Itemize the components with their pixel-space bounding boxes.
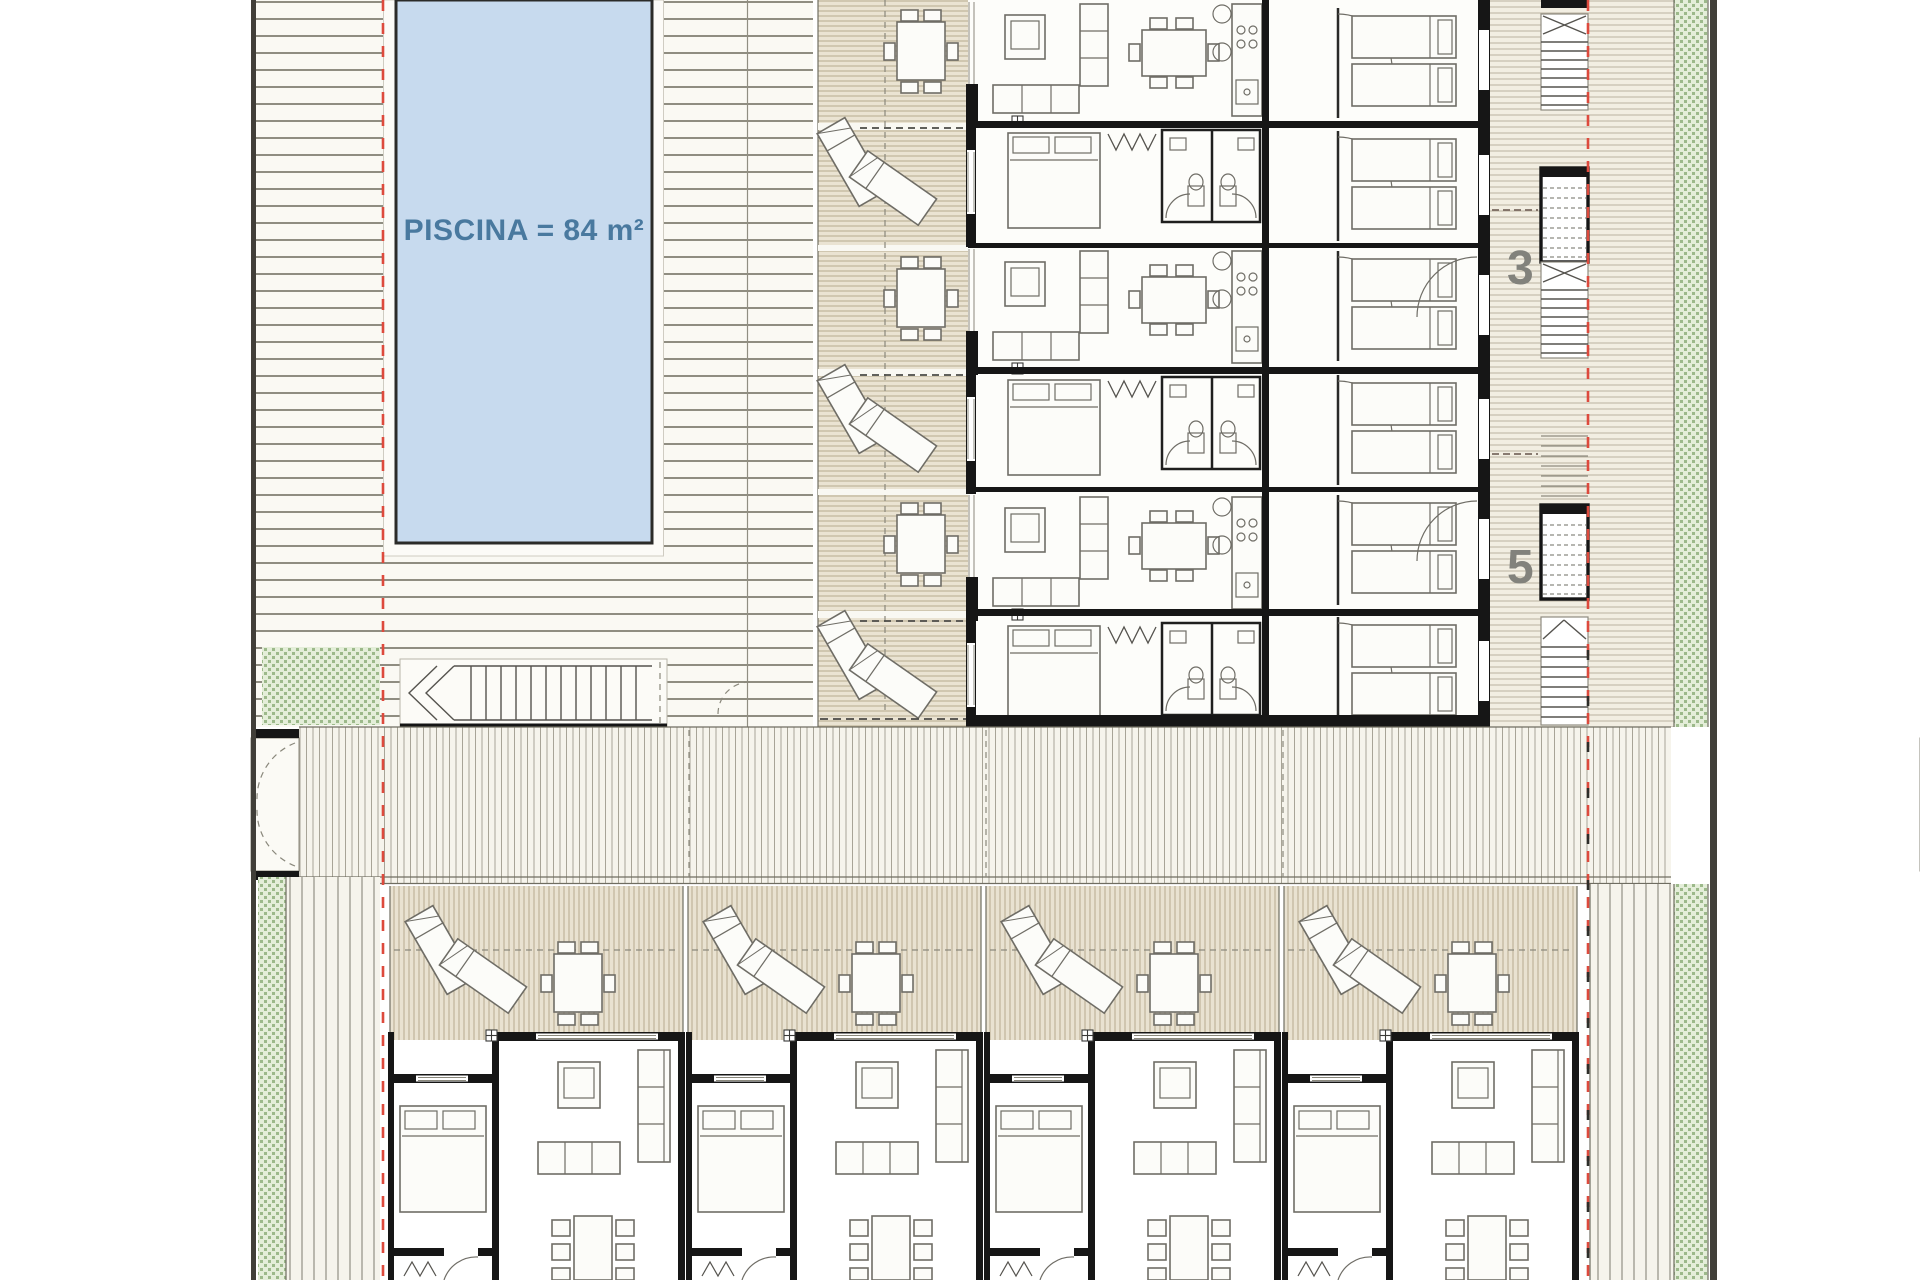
street-stairs-1 — [1541, 14, 1588, 110]
street-stairs-2 — [1541, 168, 1588, 358]
floor-plan-canvas: PISCINA = 84 m² — [0, 0, 1920, 1280]
right-street-strip: 3 5 — [1490, 0, 1674, 727]
entry-number-5: 5 — [1507, 541, 1534, 594]
top-apartment-block — [817, 0, 1490, 740]
entry-number-3: 3 — [1507, 242, 1534, 295]
pool-stairs — [400, 659, 667, 727]
site-border-right — [1710, 0, 1717, 1280]
corridor-bottom-left — [286, 877, 380, 1280]
swimming-pool: PISCINA = 84 m² — [384, 0, 664, 556]
site-border-left — [251, 0, 256, 1280]
green-patch-mid-left — [262, 647, 380, 725]
central-walkway — [299, 727, 1671, 884]
gate-left — [251, 729, 299, 880]
pool-label: PISCINA = 84 m² — [404, 214, 645, 247]
corridor-bottom-right — [1590, 884, 1674, 1280]
